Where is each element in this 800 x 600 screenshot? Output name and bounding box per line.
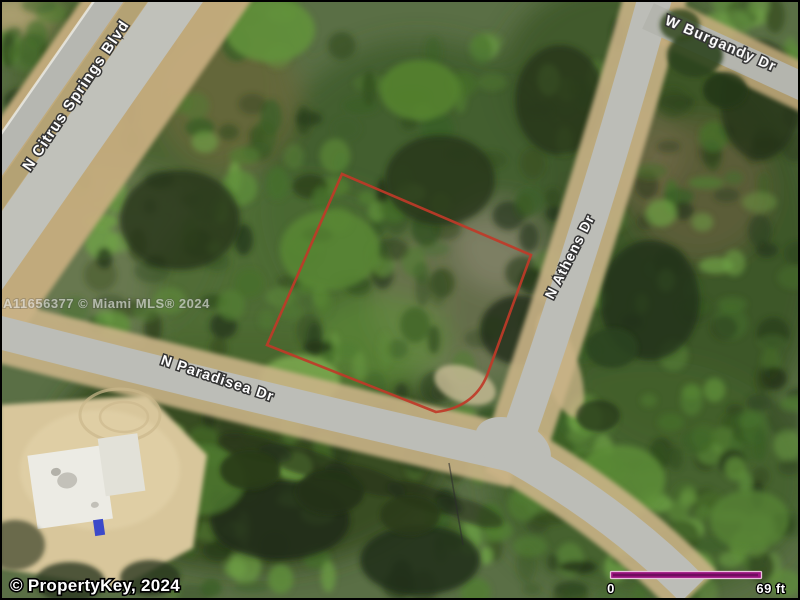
tree-blob [266, 166, 289, 200]
tree-blob [748, 214, 772, 247]
tree-blob [725, 457, 746, 480]
scale-start-label: 0 [607, 581, 615, 596]
tree-blob [519, 223, 538, 252]
tree-blob [515, 187, 545, 216]
tree-blob [520, 148, 546, 180]
tree-blob [234, 268, 265, 298]
tree-blob [321, 561, 336, 592]
tree-blob [691, 424, 717, 449]
tree-blob [695, 506, 711, 521]
aerial-imagery: A11656377 © Miami MLS® 2024 N Citrus Spr… [0, 0, 800, 600]
tree-blob [658, 413, 684, 431]
tree-blob [234, 581, 270, 593]
mls-watermark: A11656377 © Miami MLS® 2024 [3, 296, 210, 311]
tree-blob [478, 73, 507, 91]
tree-blob [523, 582, 541, 595]
tree-blob [669, 446, 683, 470]
scale-end-label: 69 ft [756, 581, 785, 596]
tree-blob [413, 262, 430, 284]
tree-blob [328, 32, 356, 60]
tree-blob [284, 144, 304, 170]
tree-blob [239, 94, 267, 115]
tree-blob [682, 384, 702, 400]
tree-blob [296, 111, 322, 125]
tree-blob [657, 140, 680, 152]
tree-blob [688, 176, 724, 189]
tree-blob [96, 247, 112, 268]
tree-blob [6, 27, 21, 39]
tree-blob [724, 171, 743, 184]
tree-blob [229, 147, 260, 165]
tree-blob [704, 378, 726, 402]
tree-blob [714, 188, 740, 202]
tree-blob [259, 310, 276, 330]
tree-blob [513, 536, 548, 557]
tree-blob [307, 322, 322, 358]
tree-blob [711, 316, 738, 340]
tree-blob [26, 20, 48, 48]
tree-blob [699, 121, 728, 152]
tree-blob [559, 561, 595, 573]
tree-blob [755, 366, 771, 394]
tree-blob [754, 430, 767, 462]
propertykey-copyright: © PropertyKey, 2024 [10, 576, 180, 595]
tree-blob [375, 238, 409, 261]
tree-blob [699, 257, 733, 273]
tree-blob [721, 414, 740, 429]
tree-blob [746, 394, 772, 411]
tree-blob [548, 554, 560, 571]
tree-blob [470, 35, 492, 65]
tree-blob [646, 200, 677, 227]
tree-blob [362, 71, 376, 106]
tree-blob [95, 310, 112, 325]
tree-blob [378, 332, 392, 367]
tree-blob [334, 342, 360, 359]
tree-blob [400, 307, 430, 343]
tree-blob [758, 335, 787, 349]
tree-blob [268, 564, 293, 593]
tree-blob [742, 192, 777, 212]
tree-blob [641, 394, 657, 407]
tree-blob [316, 289, 333, 316]
tree-blob [428, 326, 440, 354]
tree-blob [679, 492, 697, 507]
tree-blob [634, 163, 667, 179]
tree-blob [320, 139, 350, 173]
tree-blob [430, 268, 455, 297]
tree-blob [692, 213, 714, 231]
tree-blob [192, 131, 219, 153]
tree-blob [656, 87, 689, 117]
tree-blob [546, 189, 561, 207]
aerial-map: A11656377 © Miami MLS® 2024 N Citrus Spr… [0, 0, 800, 600]
tree-blob [201, 579, 222, 597]
tree-blob [331, 117, 360, 141]
tree-blob [479, 547, 492, 565]
tree-blob [218, 124, 238, 140]
